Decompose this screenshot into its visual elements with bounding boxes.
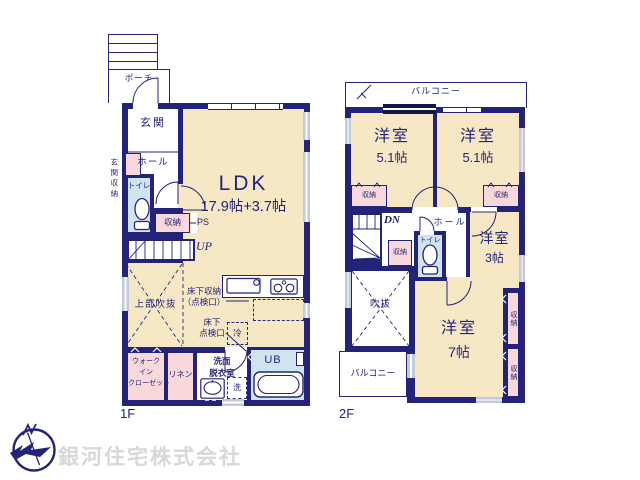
- stove-icon: [270, 278, 298, 295]
- plan-symbols-overlay: [0, 0, 640, 480]
- underfloor-storage-label: 床下収納（点検口）: [181, 286, 227, 309]
- company-name: 銀河住宅株式会社: [58, 445, 242, 469]
- linen-label: リネン: [168, 368, 193, 382]
- stairs-up-label: UP: [196, 240, 212, 254]
- refrigerator-space: 冷: [227, 322, 248, 345]
- storage-d-label: 収納: [507, 296, 519, 341]
- window-room-c-right: [519, 255, 525, 282]
- ldk-name-label: LDK: [183, 172, 304, 196]
- corridor: [154, 174, 178, 208]
- ps-label: PS: [197, 217, 209, 227]
- washroom-label: 洗面脱衣室: [197, 356, 247, 380]
- toilet-door-opening-2f: [420, 231, 434, 235]
- room-a-size-label: 5.1帖: [351, 150, 433, 166]
- open-to-above-label: 上部吹抜: [128, 298, 183, 312]
- balcony-top-label: バルコニー: [345, 84, 527, 98]
- kitchen-cupboard-dashed: [253, 299, 304, 321]
- window-ldk-top: [208, 103, 283, 110]
- compass-north-icon: [6, 419, 64, 477]
- toilet-icon: [132, 197, 152, 231]
- room-c-name-label: 洋室: [470, 230, 519, 247]
- washroom-door-opening: [225, 347, 247, 353]
- toilet-label-2f: トイレ: [418, 236, 442, 246]
- hall-label-2f: ホール: [430, 216, 470, 229]
- storage-label-1f: 収納: [155, 214, 190, 232]
- floor1-label: 1F: [120, 407, 135, 422]
- ldk-size-label: 17.9帖+3.7帖: [183, 198, 304, 216]
- walk-in-closet-label: ウォークインクローゼット: [128, 356, 164, 390]
- window-washroom-bottom: [222, 399, 244, 406]
- balcony-bottom-label: バルコニー: [339, 367, 407, 380]
- void-label: 吹抜: [351, 298, 410, 313]
- storage-b-label: 収納: [483, 188, 519, 204]
- storage-c-label: 収納: [388, 245, 412, 261]
- floor2-bottom-wall: [407, 397, 525, 403]
- entrance-storage-label: 玄関収納: [107, 148, 120, 210]
- front-door-opening: [133, 103, 158, 110]
- room-d-door-opening: [447, 277, 471, 281]
- laundry-label: 洗: [227, 381, 247, 395]
- window-room-b-right: [519, 128, 525, 172]
- room-d-name-label: 洋室: [415, 320, 503, 339]
- room-c-door-opening: [471, 207, 497, 212]
- window-room-b-top: [443, 107, 481, 113]
- porch-label: ポーチ: [108, 73, 170, 85]
- staircase-2f: [351, 213, 382, 261]
- window-kitchen-right: [303, 303, 310, 318]
- floor-plan-canvas: 冷 ポーチ 玄関 玄関収納 ホール トイレ 収納 PS UP 上部吹抜 LDK …: [0, 0, 640, 480]
- approach-steps: [108, 34, 158, 70]
- west-room-d: [415, 281, 503, 397]
- bath-counter: [296, 352, 304, 366]
- rooms-ab-door-opening: [412, 207, 458, 213]
- room-a-name-label: 洋室: [351, 128, 433, 146]
- balcony-door-room-d: [407, 354, 415, 378]
- unit-bath-label: UB: [251, 353, 295, 367]
- balcony-sliding-door: [383, 104, 436, 114]
- staircase-1f: [127, 239, 195, 261]
- underfloor-hatch-label: 床下点検口: [194, 317, 230, 340]
- sink-icon: [226, 277, 264, 295]
- window-room-d-bottom: [476, 397, 502, 403]
- storage-e-label: 収納: [507, 352, 519, 393]
- stairs-down-label: DN: [384, 214, 400, 227]
- washbasin-icon: [200, 378, 225, 399]
- corridor-2f: [446, 231, 466, 277]
- room-d-size-label: 7帖: [415, 344, 503, 361]
- floor2-label: 2F: [339, 407, 354, 422]
- window-ldk-right-2: [303, 152, 310, 222]
- hall-label-1f: ホール: [128, 156, 178, 170]
- storage-a-label: 収納: [351, 188, 387, 204]
- toilet-icon-2f: [420, 244, 440, 276]
- room-b-size-label: 5.1帖: [437, 150, 519, 166]
- west-room-c: [470, 212, 519, 288]
- entrance-label: 玄関: [128, 115, 178, 131]
- bathtub-icon: [253, 371, 304, 398]
- room-b-name-label: 洋室: [437, 128, 519, 146]
- window-ldk-right-1: [303, 112, 310, 140]
- toilet-label-1f: トイレ: [128, 181, 150, 192]
- room-c-size-label: 3帖: [470, 251, 519, 266]
